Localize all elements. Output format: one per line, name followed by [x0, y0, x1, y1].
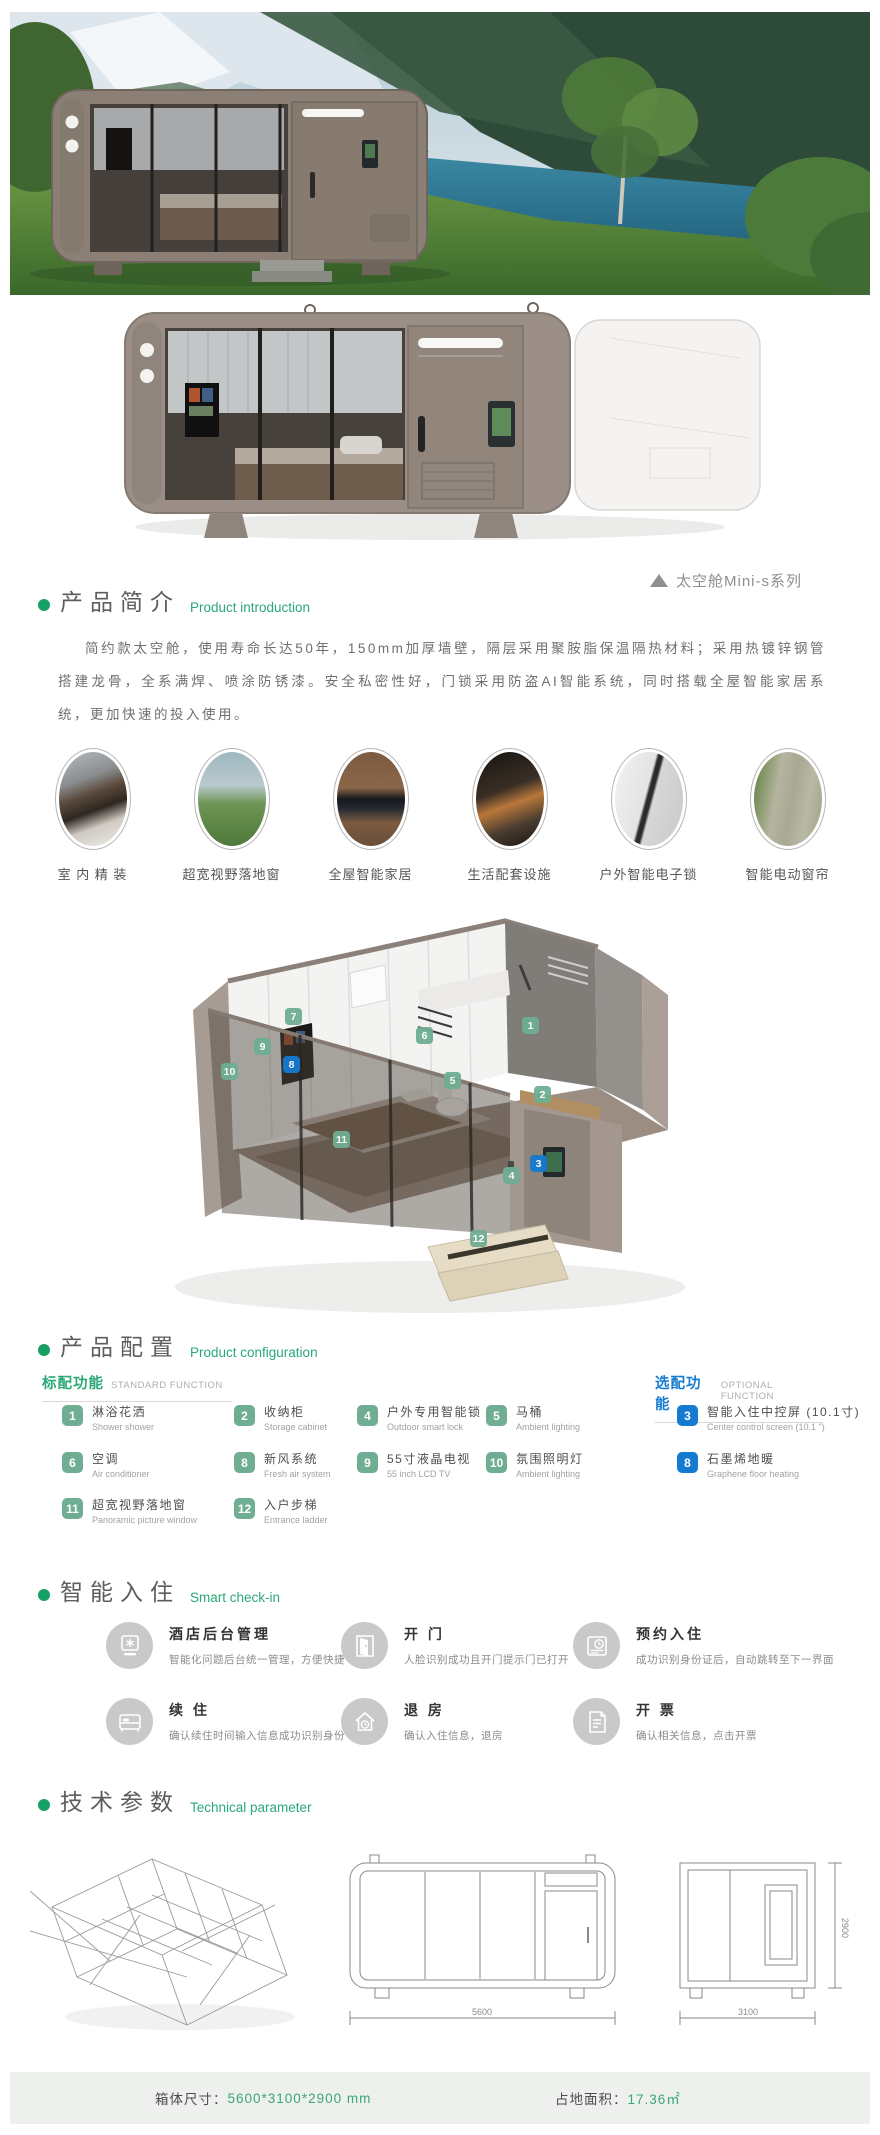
door-lock-photo — [615, 752, 683, 846]
standard-function-heading: 标配功能 STANDARD FUNCTION — [42, 1372, 232, 1402]
checkin-item: 续 住确认续住时间输入信息成功识别身份 — [106, 1698, 345, 1745]
product-page: 太空舱Mini-s系列 产品简介 Product introduction 简约… — [0, 0, 880, 2135]
feature-label: 超宽视野落地窗 — [183, 864, 281, 883]
invoice-icon — [573, 1698, 620, 1745]
config-item: 8 新风系统Fresh air system — [234, 1450, 331, 1479]
diagram-marker: 11 — [333, 1131, 350, 1148]
number-badge: 2 — [234, 1405, 255, 1426]
config-item: 2 收纳柜Storage cabinet — [234, 1403, 327, 1432]
feature-label: 智能电动窗帘 — [746, 864, 830, 883]
interior-photo — [59, 752, 127, 846]
config-item: 6 空调Air conditioner — [62, 1450, 150, 1479]
diagram-marker: 8 — [283, 1056, 300, 1073]
feature-item: 全屋智能家居 — [331, 748, 411, 883]
front-elevation-drawing — [350, 1855, 615, 2025]
checkin-heading: 智能入住 Smart check-in — [38, 1573, 280, 1607]
number-badge: 9 — [357, 1452, 378, 1473]
feature-label: 户外智能电子锁 — [600, 864, 698, 883]
config-item-optional: 8 石墨烯地暖Graphene floor heating — [677, 1450, 799, 1479]
config-item: 11 超宽视野落地窗Panoramic picture window — [62, 1496, 197, 1525]
config-heading: 产品配置 Product configuration — [38, 1328, 318, 1362]
diagram-marker: 5 — [444, 1072, 461, 1089]
feature-item: 室 内 精 装 — [53, 748, 133, 883]
diagram-marker: 1 — [522, 1017, 539, 1034]
footer-bar: 箱体尺寸：5600*3100*2900 mm 占地面积：17.36㎡ — [10, 2072, 870, 2124]
cutaway-illustration — [0, 895, 880, 1330]
feature-item: 超宽视野落地窗 — [192, 748, 272, 883]
capsule-render-illustration — [10, 298, 870, 548]
series-label: 太空舱Mini-s系列 — [650, 570, 802, 591]
cutaway-diagram: 1 2 3 4 5 6 7 8 9 10 11 12 — [0, 895, 880, 1330]
booking-clock-icon — [573, 1622, 620, 1669]
hero-photo — [10, 12, 870, 295]
diagram-marker: 2 — [534, 1086, 551, 1103]
tech-subtitle: Technical parameter — [190, 1800, 312, 1815]
number-badge: 8 — [234, 1452, 255, 1473]
config-subtitle: Product configuration — [190, 1345, 318, 1360]
number-badge: 11 — [62, 1498, 83, 1519]
intro-paragraph: 简约款太空舱，使用寿命长达50年，150mm加厚墙壁，隔层采用聚胺脂保温隔热材料… — [58, 632, 826, 731]
tech-title: 技术参数 — [60, 1783, 180, 1817]
hero-landscape-illustration — [10, 12, 870, 295]
number-badge: 5 — [486, 1405, 507, 1426]
hero-capsule — [30, 90, 450, 286]
series-text: 太空舱Mini-s系列 — [676, 570, 802, 591]
number-badge: 3 — [677, 1405, 698, 1426]
checkin-item: 退 房确认入住信息，退房 — [341, 1698, 503, 1745]
facilities-photo — [476, 752, 544, 846]
number-badge: 8 — [677, 1452, 698, 1473]
intro-heading: 产品简介 Product introduction — [38, 583, 310, 617]
feature-item: 智能电动窗帘 — [748, 748, 828, 883]
side-elevation-drawing — [680, 1863, 842, 2025]
diagram-marker: 6 — [416, 1027, 433, 1044]
length-dimension: 5600 — [472, 2007, 492, 2017]
number-badge: 12 — [234, 1498, 255, 1519]
checkin-item: 开 票确认相关信息，点击开票 — [573, 1698, 757, 1745]
diagram-marker: 10 — [221, 1063, 238, 1080]
house-clock-icon — [341, 1698, 388, 1745]
feature-list: 室 内 精 装 超宽视野落地窗 全屋智能家居 生活配套设施 户外智能电子锁 智能… — [0, 748, 880, 883]
width-dimension: 3100 — [738, 2007, 758, 2017]
bullet-dot-icon — [38, 599, 50, 611]
hotel-admin-icon — [106, 1622, 153, 1669]
config-title: 产品配置 — [60, 1328, 180, 1362]
window-photo — [198, 752, 266, 846]
diagram-marker: 4 — [503, 1167, 520, 1184]
checkin-title: 智能入住 — [60, 1573, 180, 1607]
number-badge: 4 — [357, 1405, 378, 1426]
config-item-optional: 3 智能入住中控屏 (10.1寸)Center control screen (… — [677, 1403, 860, 1432]
number-badge: 10 — [486, 1452, 507, 1473]
intro-subtitle: Product introduction — [190, 600, 310, 615]
checkin-item: 酒店后台管理智能化问题后台统一管理，方便快捷 — [106, 1622, 345, 1669]
feature-label: 全屋智能家居 — [329, 864, 413, 883]
bullet-dot-icon — [38, 1799, 50, 1811]
smart-home-photo — [337, 752, 405, 846]
config-item: 1 淋浴花洒Shower shower — [62, 1403, 154, 1432]
checkin-item: 预约入住成功识别身份证后，自动跳转至下一界面 — [573, 1622, 834, 1669]
diagram-marker: 12 — [470, 1230, 487, 1247]
intro-title: 产品简介 — [60, 583, 180, 617]
wireframe-iso-drawing — [30, 1859, 295, 2030]
config-item: 9 55寸液晶电视55 inch LCD TV — [357, 1450, 471, 1479]
render-section — [10, 298, 870, 548]
curtain-photo — [754, 752, 822, 846]
diagram-marker: 9 — [254, 1038, 271, 1055]
number-badge: 6 — [62, 1452, 83, 1473]
bullet-dot-icon — [38, 1589, 50, 1601]
checkin-item: 开 门人脸识别成功且开门提示门已打开 — [341, 1622, 569, 1669]
door-open-icon — [341, 1622, 388, 1669]
config-item: 12 入户步梯Entrance ladder — [234, 1496, 328, 1525]
triangle-icon — [650, 574, 668, 587]
technical-drawings-svg: 5600 3100 2900 — [30, 1845, 850, 2040]
config-item: 10 氛围照明灯Ambient lighting — [486, 1450, 584, 1479]
box-size: 箱体尺寸：5600*3100*2900 mm — [155, 2072, 371, 2124]
height-dimension: 2900 — [840, 1918, 850, 1938]
bullet-dot-icon — [38, 1344, 50, 1356]
feature-item: 生活配套设施 — [470, 748, 550, 883]
feature-label: 生活配套设施 — [468, 864, 552, 883]
config-item: 5 马桶Ambient lighting — [486, 1403, 580, 1432]
bed-icon — [106, 1698, 153, 1745]
config-item: 4 户外专用智能锁Outdoor smart lock — [357, 1403, 482, 1432]
diagram-marker: 3 — [530, 1155, 547, 1172]
floor-area: 占地面积：17.36㎡ — [555, 2072, 681, 2124]
tech-heading: 技术参数 Technical parameter — [38, 1783, 312, 1817]
feature-item: 户外智能电子锁 — [609, 748, 689, 883]
number-badge: 1 — [62, 1405, 83, 1426]
feature-label: 室 内 精 装 — [58, 864, 128, 883]
checkin-subtitle: Smart check-in — [190, 1590, 280, 1605]
technical-drawings: 5600 3100 2900 — [30, 1845, 850, 2040]
diagram-marker: 7 — [285, 1008, 302, 1025]
